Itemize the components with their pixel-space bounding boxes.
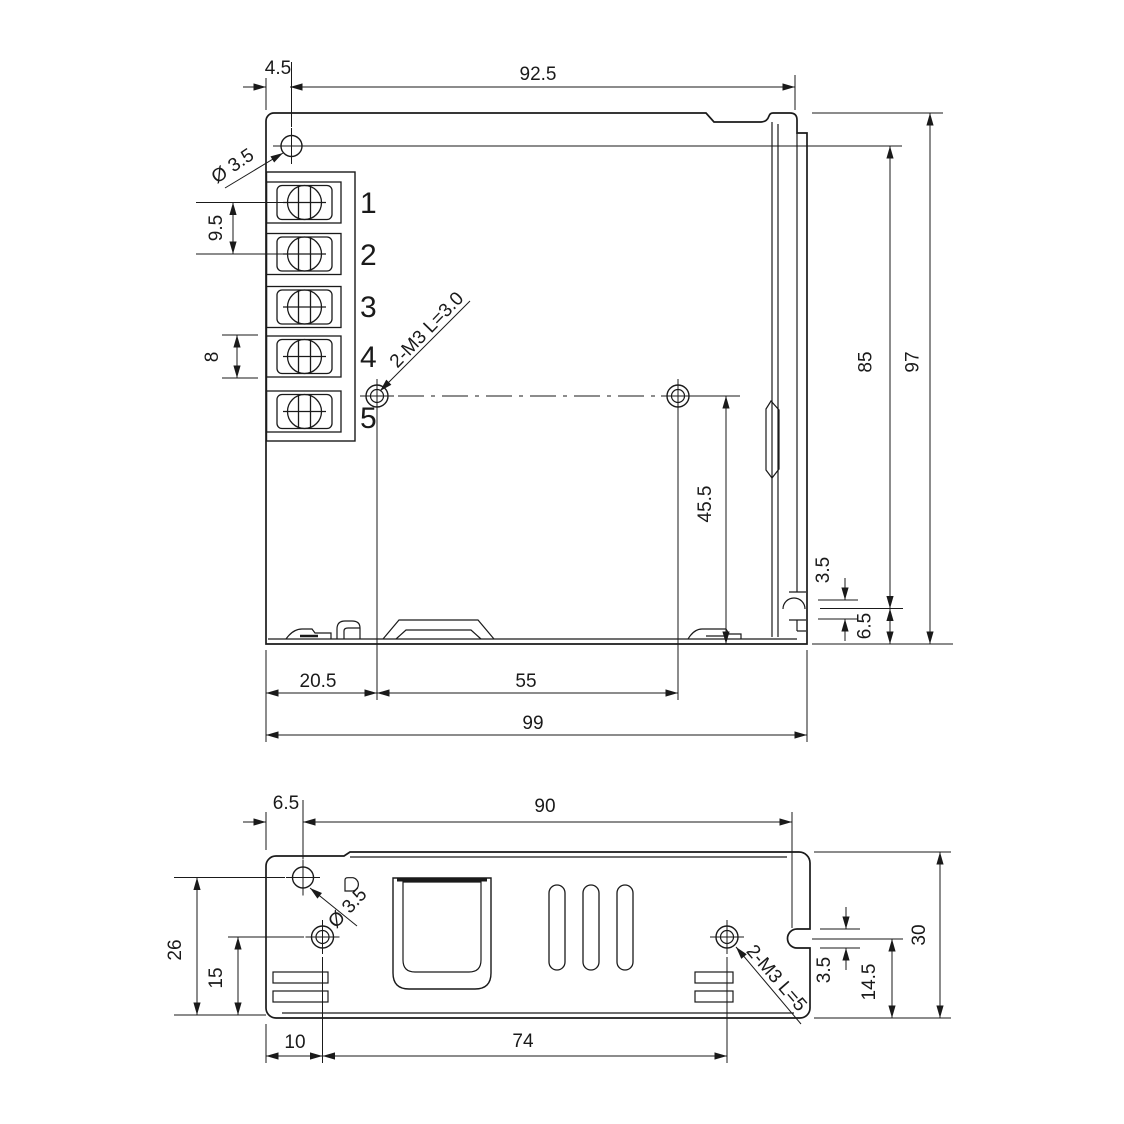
dim-total-height: 97 [903,351,924,372]
dim-side-screw-hole-x: 10 [284,1032,305,1053]
dim-side-hole-offset-x: 6.5 [273,793,299,814]
dim-flange-slot: 3.5 [813,557,834,583]
dim-side-hole-y: 26 [165,939,186,960]
dim-total-width: 99 [522,713,543,734]
dim-screw-hole-span: 55 [515,671,536,692]
terminal-label-3: 3 [360,291,377,324]
dim-side-body-width: 90 [534,796,555,817]
dim-screw-hole-y: 45.5 [695,486,716,523]
dim-terminal-pitch-large: 9.5 [206,215,227,241]
dim-side-flange-slot: 3.5 [814,957,835,983]
dim-side-total-height: 30 [909,924,930,945]
dim-body-width: 92.5 [520,64,557,85]
mechanical-drawing: 1 2 3 4 5 4.5 92.5 9.5 [0,0,1124,1124]
dim-flange-hole-y: 6.5 [855,613,876,639]
terminal-label-1: 1 [360,187,377,220]
terminal-label-4: 4 [360,341,377,374]
dim-side-screw-hole-span: 74 [512,1031,534,1052]
dim-terminal-pitch-small: 8 [202,352,223,363]
dim-hole-offset-x: 4.5 [265,58,291,79]
dim-mount-height: 85 [856,351,877,372]
mechanical-drawing-page: 1 2 3 4 5 4.5 92.5 9.5 [0,0,1124,1124]
dim-screw-hole-x: 20.5 [300,671,337,692]
terminal-label-2: 2 [360,239,377,272]
dim-side-flange-slot-y: 14.5 [859,964,880,1001]
dim-side-screw-hole-y: 15 [206,967,227,988]
